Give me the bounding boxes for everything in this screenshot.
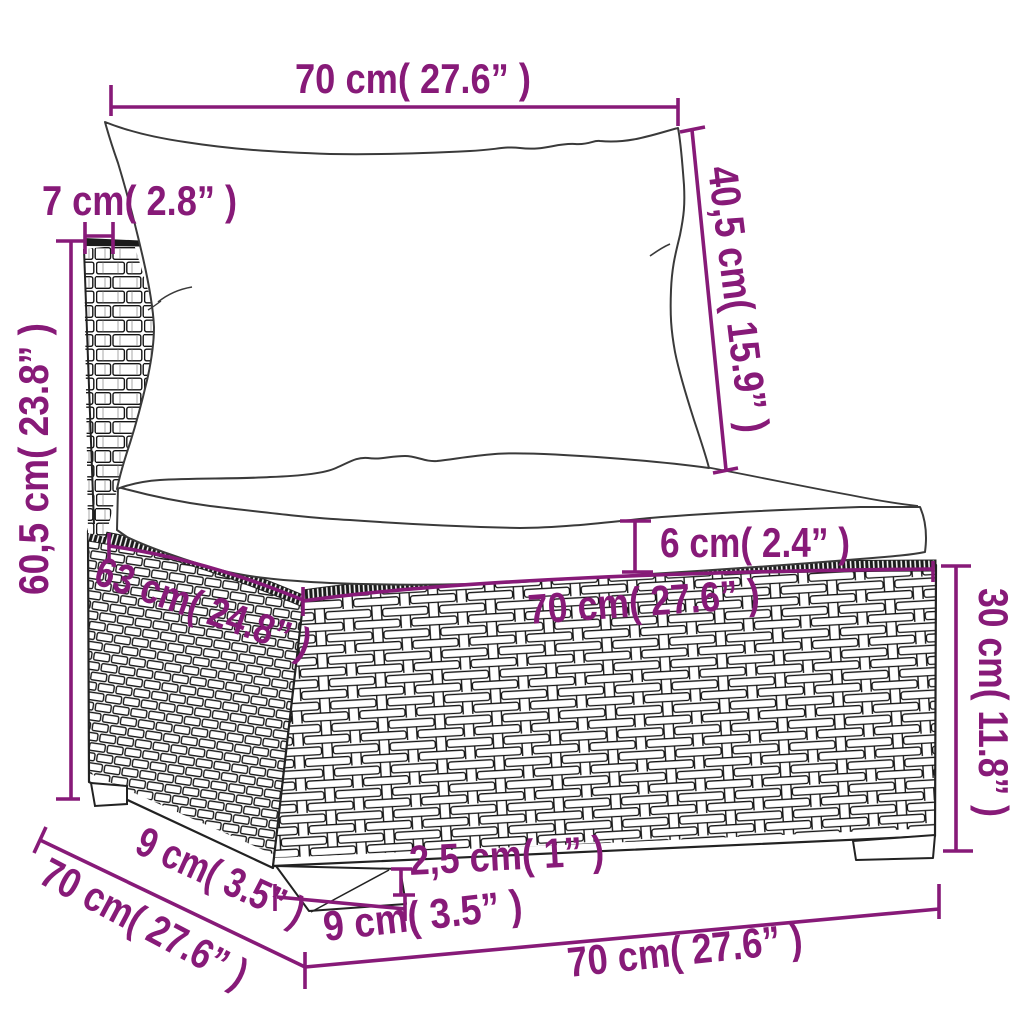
svg-text:6 cm( 2.4” ): 6 cm( 2.4” ) bbox=[660, 519, 850, 566]
svg-text:30 cm( 11.8” ): 30 cm( 11.8” ) bbox=[970, 588, 1017, 817]
svg-text:60,5 cm( 23.8” ): 60,5 cm( 23.8” ) bbox=[10, 323, 57, 595]
svg-text:7 cm( 2.8” ): 7 cm( 2.8” ) bbox=[42, 177, 237, 224]
svg-text:70 cm( 27.6” ): 70 cm( 27.6” ) bbox=[295, 55, 531, 102]
